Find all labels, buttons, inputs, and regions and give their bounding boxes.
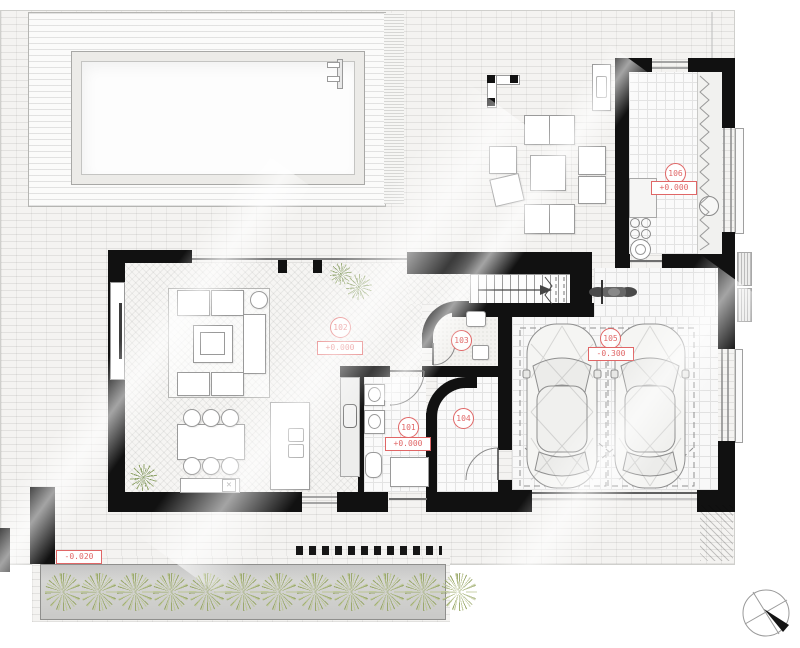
plant-icon	[346, 274, 372, 300]
swimming-pool	[72, 52, 364, 184]
side-table	[250, 291, 268, 309]
kitchen-sink	[343, 404, 357, 428]
dining-chair	[183, 409, 201, 427]
grass-plant-icon	[441, 573, 477, 611]
wall-segment	[615, 58, 652, 72]
site-wall-edge	[0, 528, 10, 572]
tv-cabinet	[110, 282, 125, 380]
pergola-post	[510, 75, 518, 83]
room-elevation-102: +0.000	[317, 341, 363, 355]
staircase	[470, 274, 570, 306]
grass-plant-icon	[369, 573, 405, 611]
room-elevation-105: -0.300	[588, 347, 634, 361]
dining-table	[177, 424, 245, 460]
grass-plant-icon	[225, 573, 261, 611]
laundry-basket	[365, 452, 382, 478]
grass-plant-icon	[153, 573, 189, 611]
entrance-mat	[296, 546, 442, 555]
tv-screen	[119, 303, 122, 359]
grass-plant-icon	[117, 573, 153, 611]
ac-unit	[737, 252, 752, 286]
window-frame	[735, 349, 743, 443]
wall-segment	[340, 366, 390, 377]
patio-seat	[578, 146, 606, 175]
round-sink-drain	[635, 244, 646, 255]
floor-stair-passage	[408, 274, 470, 304]
pool-ladder-rung	[327, 62, 340, 68]
dining-chair	[202, 409, 220, 427]
driveway-hatch	[700, 505, 733, 561]
sofa-cushion	[211, 290, 244, 316]
wall-segment	[498, 317, 512, 450]
door-mullion	[278, 260, 287, 273]
room-elevation-101: +0.000	[385, 437, 431, 451]
wall-segment	[108, 250, 192, 263]
extractor-fan-icon	[699, 196, 719, 216]
window-frame	[735, 128, 744, 234]
dining-chair	[183, 457, 201, 475]
floor-plan-canvas: ✕	[0, 0, 800, 648]
patio-seat	[549, 115, 575, 145]
grass-plant-icon	[333, 573, 369, 611]
toilet	[466, 311, 486, 327]
wall-segment	[498, 490, 532, 512]
wall-segment	[721, 58, 735, 128]
sofa-cushion	[211, 372, 244, 396]
patio-seat	[549, 204, 575, 234]
door-mullion	[313, 260, 322, 273]
north-arrow-icon	[740, 587, 792, 639]
plant-icon	[130, 464, 157, 491]
island-hob	[288, 444, 304, 458]
wall-segment	[662, 254, 735, 268]
wall-segment	[337, 492, 388, 512]
hob-burner	[630, 218, 640, 228]
wall-segment	[108, 492, 302, 512]
pergola-post	[487, 98, 495, 106]
room-elevation-106: +0.000	[651, 181, 697, 195]
wall-segment	[718, 268, 735, 349]
floor-garage-forecourt	[594, 268, 718, 317]
hob-burner	[641, 229, 651, 239]
grass-plant-icon	[81, 573, 117, 611]
grass-plant-icon	[297, 573, 333, 611]
dining-chair	[221, 457, 239, 475]
patio-table	[530, 155, 566, 191]
wall-segment	[615, 58, 629, 268]
coffee-table-inner	[200, 332, 225, 355]
wall-segment	[422, 333, 433, 343]
pool-deck-edge-strip	[384, 13, 404, 204]
room-label-103: 103	[451, 330, 472, 351]
wc-sink	[472, 345, 489, 360]
patio-seat	[524, 115, 550, 145]
kitchen-tall-units	[697, 72, 722, 254]
grass-plant-icon	[45, 573, 81, 611]
dryer-door	[368, 414, 381, 429]
hob-burner	[641, 218, 651, 228]
grass-plant-icon	[405, 573, 441, 611]
grass-plant-icon	[261, 573, 297, 611]
wall-segment	[615, 254, 630, 268]
chaise-lounge	[243, 314, 266, 374]
site-elevation-label: -0.020	[56, 550, 102, 564]
room-label-102: 102	[330, 317, 351, 338]
room-label-104: 104	[453, 408, 474, 429]
pool-ladder-rung	[327, 76, 340, 82]
dining-chair	[221, 409, 239, 427]
sofa-cushion	[177, 290, 210, 316]
ac-unit	[737, 288, 752, 322]
patio-seat	[489, 146, 517, 174]
pergola-post	[487, 75, 495, 83]
wall-segment	[407, 252, 579, 274]
grill-lid	[596, 76, 607, 98]
grass-plant-icon	[189, 573, 225, 611]
hob-burner	[630, 229, 640, 239]
patio-seat	[578, 176, 606, 204]
utility-table	[390, 457, 429, 487]
room-label-105: 105	[600, 328, 621, 349]
patio-seat	[524, 204, 550, 234]
island-sink	[288, 428, 304, 442]
sofa-cushion	[177, 372, 210, 396]
dining-chair	[202, 457, 220, 475]
room-label-101: 101	[398, 417, 419, 438]
washer-door	[368, 387, 381, 402]
planter-plants	[40, 564, 446, 620]
site-wall-pillar	[30, 487, 55, 564]
fireplace-flue: ✕	[222, 479, 236, 492]
